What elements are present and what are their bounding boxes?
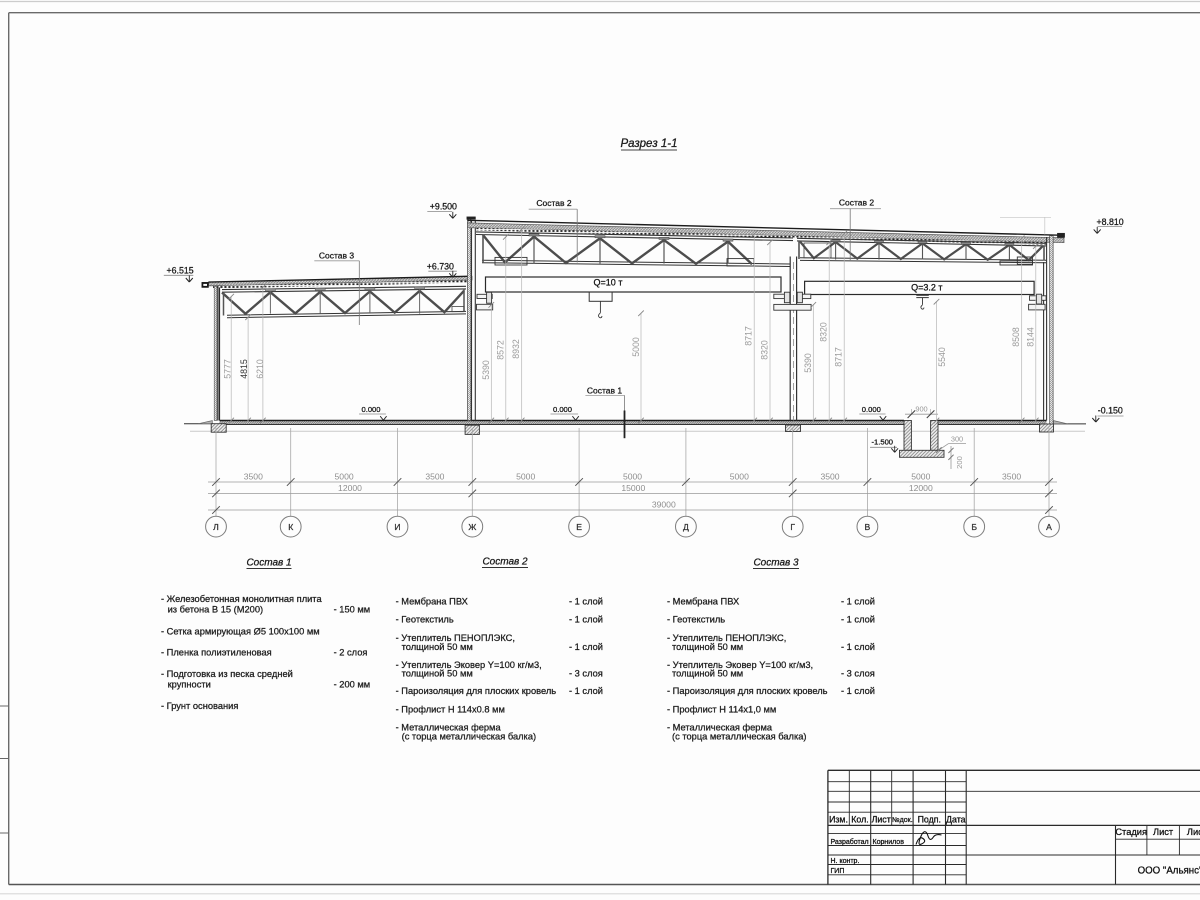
svg-text:Г: Г (790, 522, 795, 532)
svg-text:- Сетка армирующая Ø5 100х100: - Сетка армирующая Ø5 100х100 мм (161, 627, 320, 637)
svg-text:- 3 слоя: - 3 слоя (569, 669, 603, 679)
svg-text:ГИП: ГИП (831, 868, 845, 875)
svg-text:0.000: 0.000 (862, 405, 881, 414)
svg-text:+6.730: +6.730 (427, 262, 454, 272)
svg-text:- Пароизоляция для плоских кро: - Пароизоляция для плоских кровель (667, 686, 828, 696)
svg-text:4815: 4815 (239, 359, 249, 379)
svg-text:- Геотекстиль: - Геотекстиль (396, 615, 454, 625)
svg-text:-0.150: -0.150 (1098, 406, 1123, 416)
svg-text:Кол.: Кол. (851, 814, 868, 824)
svg-text:Л: Л (213, 522, 219, 532)
svg-text:В: В (865, 522, 871, 532)
svg-text:- Пленка полиэтиленовая: - Пленка полиэтиленовая (161, 648, 272, 658)
svg-text:3500: 3500 (1002, 471, 1021, 481)
svg-text:- Профлист Н 114х1,0 мм: - Профлист Н 114х1,0 мм (667, 705, 776, 715)
svg-text:-1.500: -1.500 (872, 438, 894, 447)
svg-text:Разрез 1-1: Разрез 1-1 (621, 138, 678, 150)
svg-text:- Геотекстиль: - Геотекстиль (667, 615, 725, 625)
svg-text:Лист: Лист (872, 814, 891, 824)
svg-text:толщиной 50 мм: толщиной 50 мм (672, 669, 743, 679)
svg-text:8572: 8572 (495, 340, 505, 360)
svg-text:+9.500: +9.500 (430, 202, 457, 212)
svg-text:- 3 слоя: - 3 слоя (841, 669, 875, 679)
svg-text:5000: 5000 (730, 471, 749, 481)
svg-text:- Мембрана ПВХ: - Мембрана ПВХ (667, 597, 739, 607)
svg-text:0.000: 0.000 (553, 405, 572, 414)
svg-text:- 1 слой: - 1 слой (841, 615, 875, 625)
svg-text:6210: 6210 (255, 359, 265, 379)
svg-text:Изм.: Изм. (829, 814, 848, 824)
svg-text:8717: 8717 (744, 326, 754, 346)
svg-text:Разработал: Разработал (831, 838, 869, 846)
svg-text:- Профлист Н 114х0.8 мм: - Профлист Н 114х0.8 мм (396, 705, 505, 715)
svg-text:- 1 слой: - 1 слой (569, 642, 603, 652)
svg-text:толщиной 50 мм: толщиной 50 мм (672, 642, 743, 652)
svg-text:5540: 5540 (937, 347, 947, 367)
svg-text:Лист: Лист (1153, 827, 1174, 837)
svg-text:Q=10 т: Q=10 т (594, 278, 623, 288)
svg-text:- 200 мм: - 200 мм (334, 680, 371, 690)
svg-text:Стадия: Стадия (1115, 827, 1147, 837)
svg-text:Состав 1: Состав 1 (587, 386, 623, 396)
svg-text:Состав 2: Состав 2 (536, 198, 572, 208)
svg-text:200: 200 (955, 456, 964, 469)
svg-text:- 1 слой: - 1 слой (569, 615, 603, 625)
svg-text:- 1 слой: - 1 слой (841, 597, 875, 607)
svg-text:Состав 3: Состав 3 (753, 558, 799, 569)
svg-text:+6.515: +6.515 (167, 265, 194, 275)
svg-text:300: 300 (951, 434, 963, 443)
svg-text:5390: 5390 (803, 353, 813, 373)
svg-text:12000: 12000 (909, 483, 933, 493)
svg-text:толщиной 50 мм: толщиной 50 мм (402, 669, 473, 679)
svg-text:900: 900 (915, 405, 927, 414)
svg-text:- 2 слоя: - 2 слоя (334, 648, 368, 658)
svg-text:Состав 1: Состав 1 (246, 558, 291, 569)
svg-text:5390: 5390 (481, 360, 491, 380)
svg-text:Лист: Лист (1187, 827, 1200, 837)
svg-text:0.000: 0.000 (362, 405, 381, 414)
svg-text:Ж: Ж (468, 522, 476, 532)
svg-text:8717: 8717 (834, 347, 844, 367)
svg-text:5000: 5000 (516, 471, 535, 481)
svg-text:8320: 8320 (760, 340, 770, 360)
svg-text:- Грунт основания: - Грунт основания (161, 701, 238, 711)
svg-text:- 1 слой: - 1 слой (841, 686, 875, 696)
svg-text:К: К (288, 522, 293, 532)
svg-text:15000: 15000 (621, 483, 645, 493)
svg-text:Q=3.2 т: Q=3.2 т (911, 283, 942, 293)
svg-text:ООО "Альянс": ООО "Альянс" (1138, 866, 1200, 877)
svg-text:И: И (394, 522, 400, 532)
svg-text:- Железобетонная монолитная п: - Железобетонная монолитная плита (161, 594, 322, 604)
svg-text:5000: 5000 (623, 471, 642, 481)
svg-text:8320: 8320 (819, 322, 829, 342)
svg-text:- Пароизоляция для плоских кро: - Пароизоляция для плоских кровель (396, 686, 557, 696)
svg-text:8144: 8144 (1025, 327, 1035, 347)
svg-text:(с торца металлическая балка): (с торца металлическая балка) (402, 732, 536, 742)
svg-text:8508: 8508 (1011, 327, 1021, 347)
svg-text:- 1 слой: - 1 слой (841, 642, 875, 652)
svg-text:3500: 3500 (244, 471, 263, 481)
svg-text:12000: 12000 (338, 483, 362, 493)
svg-text:крупности: крупности (168, 680, 211, 690)
svg-text:толщиной 50 мм: толщиной 50 мм (402, 642, 473, 652)
svg-text:из бетона В 15 (М200): из бетона В 15 (М200) (168, 605, 264, 615)
svg-text:- 1 слой: - 1 слой (569, 597, 603, 607)
svg-text:Дата: Дата (946, 814, 966, 824)
svg-text:Б: Б (971, 522, 977, 532)
svg-text:Д: Д (683, 522, 689, 532)
svg-text:- Мембрана ПВХ: - Мембрана ПВХ (396, 597, 468, 607)
svg-text:Подп.: Подп. (918, 814, 941, 824)
svg-text:- Подготовка из песка средней: - Подготовка из песка средней (161, 669, 293, 679)
svg-text:- 1 слой: - 1 слой (569, 686, 603, 696)
svg-text:39000: 39000 (652, 499, 676, 509)
svg-text:Корнилов: Корнилов (873, 839, 905, 846)
svg-text:5000: 5000 (631, 337, 641, 357)
svg-text:5000: 5000 (335, 471, 354, 481)
svg-text:№док.: №док. (892, 817, 913, 824)
svg-text:Состав 2: Состав 2 (482, 557, 528, 568)
svg-text:Состав 3: Состав 3 (319, 251, 355, 261)
svg-text:3500: 3500 (425, 471, 444, 481)
svg-text:5000: 5000 (911, 471, 930, 481)
svg-text:3500: 3500 (820, 471, 839, 481)
svg-text:5777: 5777 (222, 359, 232, 379)
svg-text:+8.810: +8.810 (1097, 217, 1124, 227)
svg-text:Е: Е (576, 522, 582, 532)
svg-text:А: А (1046, 522, 1052, 532)
svg-text:Состав 2: Состав 2 (839, 197, 875, 207)
svg-text:(с торца металлическая балка): (с торца металлическая балка) (672, 732, 807, 742)
svg-text:Н. контр.: Н. контр. (831, 858, 860, 865)
svg-text:8932: 8932 (511, 339, 521, 359)
svg-text:- 150 мм: - 150 мм (334, 605, 371, 615)
